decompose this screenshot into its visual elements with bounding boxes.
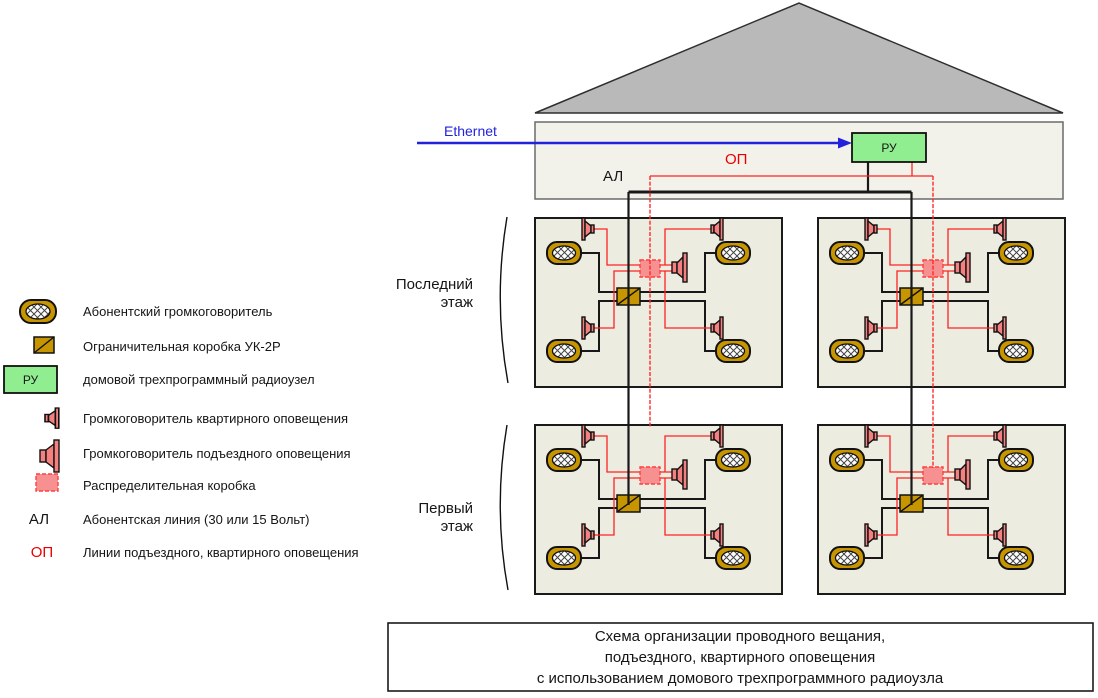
radio-node-icon-label: РУ — [23, 373, 39, 387]
legend-row-apartment-speaker: Громкоговоритель квартирного оповещения — [45, 408, 348, 428]
legend-label: Ограничительная коробка УК-2Р — [83, 339, 281, 354]
legend-row-al: АЛ Абонентская линия (30 или 15 Вольт) — [29, 511, 310, 528]
top-floor-label-line2: этаж — [441, 294, 473, 311]
ethernet-label: Ethernet — [444, 123, 497, 139]
legend-label: Линии подъездного, квартирного оповещени… — [83, 545, 359, 560]
wiring-scheme-diagram: Ethernet РУ АЛ ОП Последний этаж Первый … — [0, 0, 1098, 693]
first-floor-label-line1: Первый — [418, 500, 473, 517]
caption-line-3: с использованием домового трехпрограммно… — [537, 670, 944, 687]
op-symbol: ОП — [31, 544, 53, 561]
legend-row-radio-node: РУ домовой трехпрограммный радиоузел — [4, 366, 315, 393]
top-floor-label-line1: Последний — [396, 276, 473, 293]
floor-block-top-right — [818, 218, 1065, 387]
brace-top-floor — [500, 217, 508, 383]
al-symbol: АЛ — [29, 511, 49, 528]
legend-row-op: ОП Линии подъездного, квартирного оповещ… — [31, 544, 359, 561]
al-line-label: АЛ — [603, 168, 623, 185]
subscriber-speaker-icon — [20, 300, 56, 323]
diagram-canvas: Ethernet РУ АЛ ОП Последний этаж Первый … — [0, 0, 1098, 693]
legend: Абонентский громкоговоритель Ограничител… — [4, 300, 359, 561]
legend-row-entrance-speaker: Громкоговоритель подъездного оповещения — [40, 440, 351, 472]
first-floor-label-line2: этаж — [441, 518, 473, 535]
floor-block-top-left — [535, 218, 782, 387]
brace-first-floor — [500, 425, 508, 590]
attic-box — [535, 122, 1063, 199]
legend-row-distribution-box: Распределительная коробка — [36, 474, 256, 493]
legend-label: Громкоговоритель подъездного оповещения — [83, 446, 351, 461]
legend-row-subscriber-speaker: Абонентский громкоговоритель — [20, 300, 273, 323]
distribution-box-icon — [36, 474, 58, 491]
roof — [535, 3, 1063, 113]
caption-line-1: Схема организации проводного вещания, — [595, 628, 885, 645]
floor-block-bottom-right — [818, 425, 1065, 594]
legend-label: Абонентский громкоговоритель — [83, 304, 273, 319]
floor-block-bottom-left — [535, 425, 782, 594]
legend-label: Громкоговоритель квартирного оповещения — [83, 411, 348, 426]
radio-node-label: РУ — [881, 141, 897, 155]
limiter-box-icon — [34, 337, 54, 353]
legend-label: Абонентская линия (30 или 15 Вольт) — [83, 512, 309, 527]
legend-label: домовой трехпрограммный радиоузел — [83, 372, 315, 387]
legend-row-limiter-box: Ограничительная коробка УК-2Р — [34, 337, 281, 354]
op-line-label: ОП — [725, 151, 747, 168]
legend-label: Распределительная коробка — [83, 478, 256, 493]
caption-line-2: подъездного, квартирного оповещения — [605, 649, 876, 666]
entrance-speaker-icon — [40, 440, 59, 472]
caption-block: Схема организации проводного вещания, по… — [388, 623, 1093, 691]
